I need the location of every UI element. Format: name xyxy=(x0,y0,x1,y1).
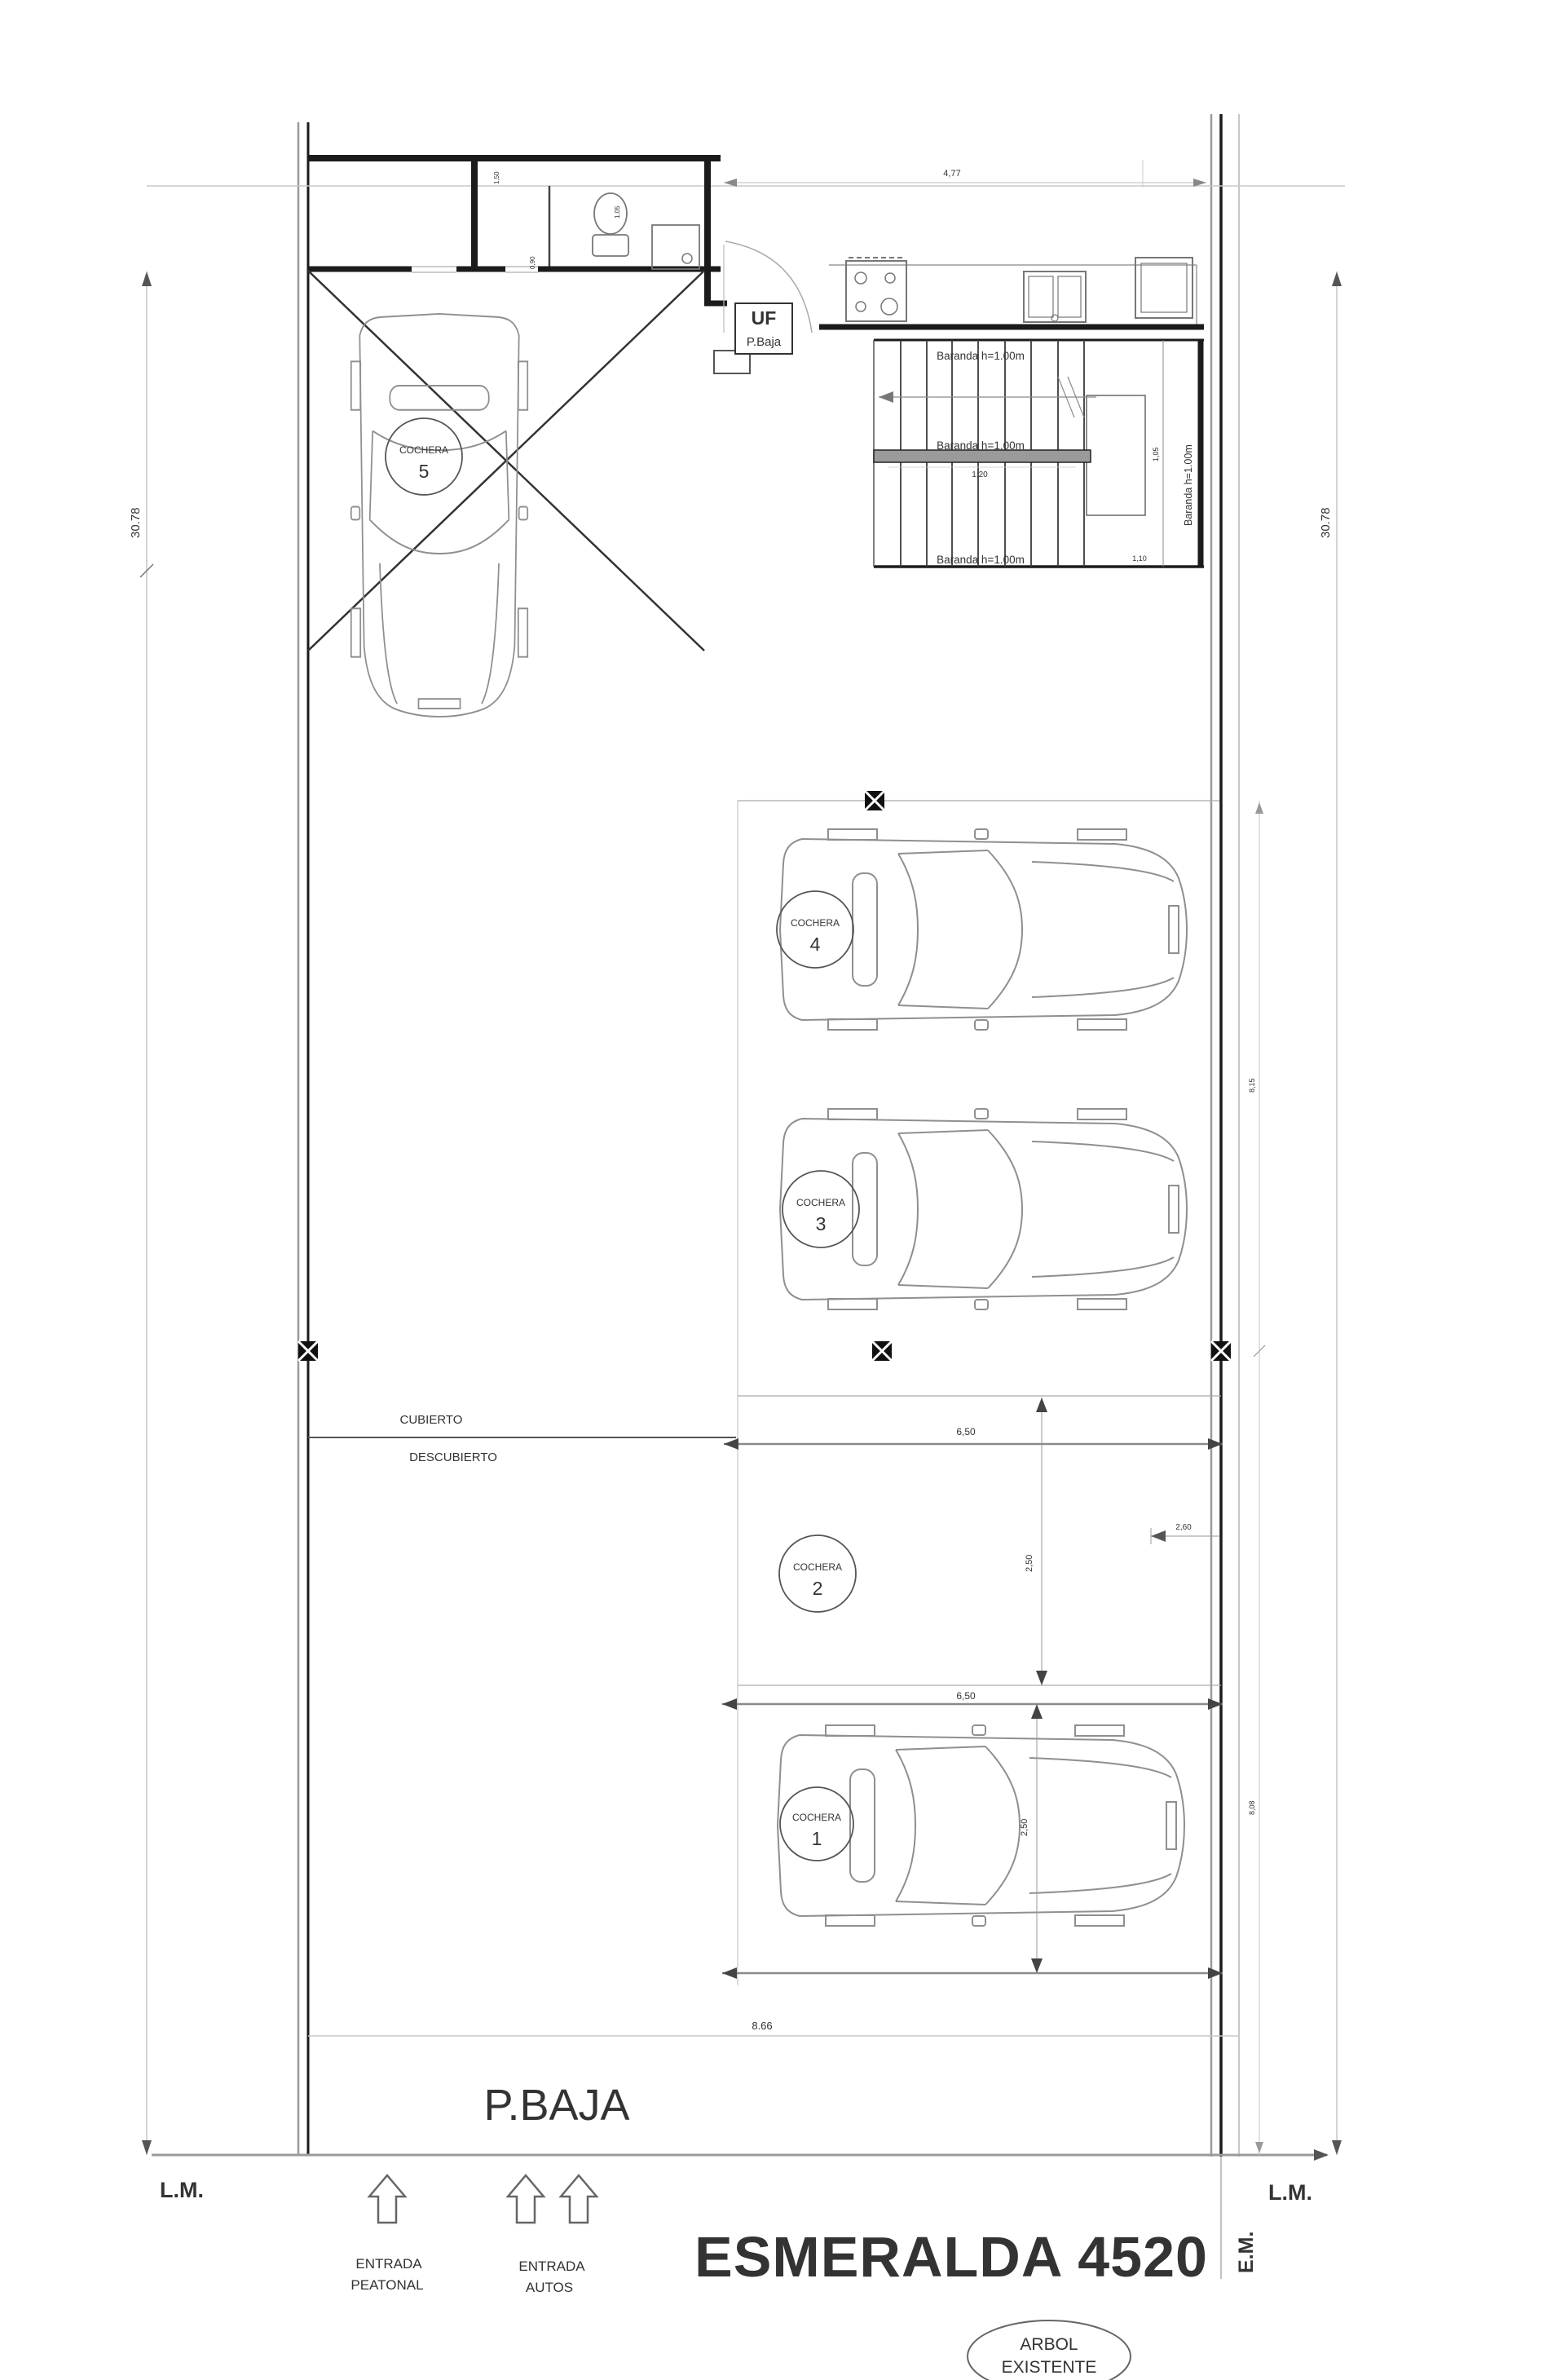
cochera-labels: COCHERA 5 COCHERA 4 COCHERA 3 COCHERA 2 … xyxy=(386,418,859,1861)
existing-tree-badge: ARBOL EXISTENTE xyxy=(968,2320,1131,2380)
cochera1-title: COCHERA xyxy=(792,1812,841,1823)
cochera1-number: 1 xyxy=(812,1828,822,1849)
stove-icon xyxy=(846,258,906,321)
dim-lot-depth-left: 30.78 xyxy=(129,507,143,538)
parking-bay-lines xyxy=(738,801,1221,1985)
cochera5-badge: COCHERA 5 xyxy=(386,418,462,495)
pedestrian-entrance-arrow xyxy=(369,2175,405,2223)
staircase: Baranda h=1.00m Baranda h=1.00m Baranda … xyxy=(874,340,1204,567)
unit-label-box: UF P.Baja xyxy=(735,303,792,354)
entrada-autos-line1: ENTRADA xyxy=(518,2259,585,2274)
street-address-title: ESMERALDA 4520 xyxy=(694,2225,1208,2289)
dim-stair-landing: 1,10 xyxy=(1132,554,1147,563)
car-cochera5 xyxy=(351,314,527,717)
cochera5-cross xyxy=(308,271,704,651)
kitchen xyxy=(819,258,1204,327)
dim-room-tiny-a: 1,50 xyxy=(493,171,500,184)
cochera2-number: 2 xyxy=(813,1578,823,1599)
dim-bay2-depth: 2,50 xyxy=(1025,1555,1034,1572)
dim-stair-side: 1,05 xyxy=(1152,447,1160,461)
descubierto-label: DESCUBIERTO xyxy=(409,1451,497,1464)
cochera4-number: 4 xyxy=(810,934,821,955)
property-boundaries xyxy=(147,114,1345,2279)
baranda-label-vertical: Baranda h=1.00m xyxy=(1183,444,1194,526)
dim-top-width: 4,77 xyxy=(943,169,960,179)
car-cochera3 xyxy=(780,1109,1187,1309)
unit-label: UF xyxy=(752,307,777,329)
dim-right-segment-upper: 8,15 xyxy=(1248,1078,1256,1093)
cochera2-dimensions: 6,50 2,50 2,60 xyxy=(724,1398,1223,1685)
column-marker-right xyxy=(1211,1341,1231,1361)
bottom-annotations: P.BAJA L.M. L.M. E.M. ENTRADA PEATONAL E… xyxy=(160,2081,1312,2380)
dim-bay1-width: 6,50 xyxy=(956,1690,976,1702)
car-cochera4 xyxy=(780,829,1187,1030)
cochera3-title: COCHERA xyxy=(796,1197,845,1208)
stair-direction-arrow xyxy=(879,391,893,403)
dim-stair-run: 1,20 xyxy=(972,470,988,479)
cochera5-title: COCHERA xyxy=(399,444,448,456)
sink-icon xyxy=(1024,272,1086,322)
dim-bay2-offset: 2,60 xyxy=(1175,1523,1192,1532)
dim-right-segment-lower: 8,08 xyxy=(1248,1800,1256,1815)
bathroom-fixtures xyxy=(593,193,699,269)
lm-label-right: L.M. xyxy=(1268,2180,1312,2205)
auto-entrance-arrow-1 xyxy=(508,2175,544,2223)
cochera2-badge: COCHERA 2 xyxy=(779,1535,856,1612)
stair-handrail xyxy=(874,450,1091,462)
cochera2-title: COCHERA xyxy=(793,1561,842,1573)
cochera3-number: 3 xyxy=(816,1213,827,1234)
column-marker-left xyxy=(298,1341,318,1361)
cochera4-title: COCHERA xyxy=(791,917,840,929)
floor-plan-drawing: UF P.Baja xyxy=(0,0,1565,2380)
em-label: E.M. xyxy=(1235,2232,1258,2273)
unit-floor-label: P.Baja xyxy=(747,335,782,349)
cochera5-number: 5 xyxy=(419,461,430,482)
auto-entrance-arrow-2 xyxy=(561,2175,597,2223)
shower-tray-icon xyxy=(652,225,699,269)
cochera3-badge: COCHERA 3 xyxy=(782,1171,859,1247)
baranda-label-top: Baranda h=1.00m xyxy=(937,350,1025,362)
arbol-line1: ARBOL xyxy=(1020,2335,1078,2354)
dim-lot-depth-right: 30.78 xyxy=(1319,507,1333,538)
car-cochera1 xyxy=(778,1725,1184,1926)
entrada-autos-line2: AUTOS xyxy=(526,2280,573,2295)
baranda-label-bottom: Baranda h=1.00m xyxy=(937,554,1025,566)
toilet-icon xyxy=(594,193,627,234)
dim-bay1-depth: 2,50 xyxy=(1020,1819,1029,1836)
dim-room-tiny-c: 0,90 xyxy=(529,256,536,269)
column-marker-top xyxy=(865,791,884,810)
dim-bay2-width: 6,50 xyxy=(956,1426,976,1437)
cochera4-badge: COCHERA 4 xyxy=(777,891,853,968)
dim-room-tiny-b: 1,05 xyxy=(614,205,621,219)
stair-landing xyxy=(1087,395,1145,515)
covered-boundary: CUBIERTO DESCUBIERTO xyxy=(308,1413,736,1464)
cochera1-badge: COCHERA 1 xyxy=(780,1787,853,1861)
cubierto-label: CUBIERTO xyxy=(400,1413,463,1427)
floor-title: P.BAJA xyxy=(483,2081,629,2130)
top-rooms-walls xyxy=(308,158,727,303)
fridge-icon xyxy=(1135,258,1192,318)
entrada-peatonal-line2: PEATONAL xyxy=(350,2277,423,2293)
lm-label-left: L.M. xyxy=(160,2178,204,2202)
dim-front-width: 8.66 xyxy=(752,2020,772,2032)
floor-plan-sheet: UF P.Baja xyxy=(0,0,1565,2380)
arbol-line2: EXISTENTE xyxy=(1002,2358,1097,2377)
baranda-label-middle: Baranda h=1.00m xyxy=(937,439,1025,452)
entrada-peatonal-line1: ENTRADA xyxy=(355,2256,422,2272)
column-marker-center xyxy=(872,1341,892,1361)
